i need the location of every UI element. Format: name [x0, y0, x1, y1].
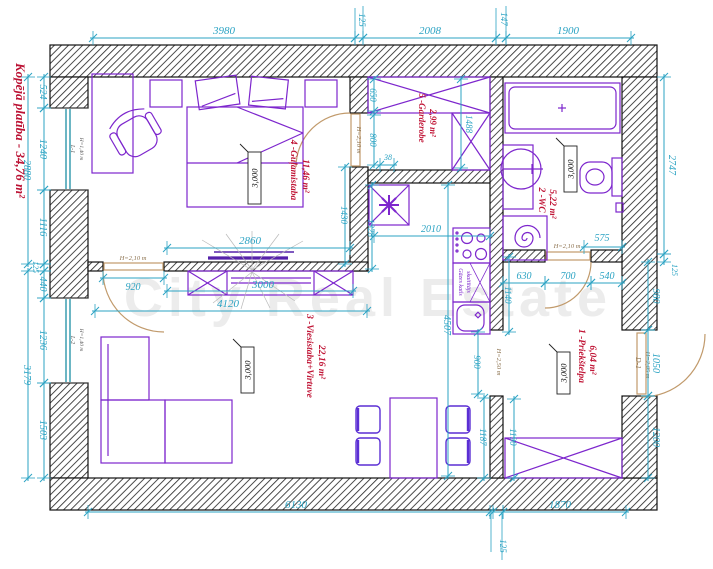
dimension-label: 700: [561, 271, 576, 282]
room-label-bedroom: 4 -Guļamistaba: [288, 139, 298, 201]
dimension-label: 1200: [650, 427, 661, 447]
dimension-label: 125: [670, 264, 679, 276]
wall-interior: [490, 396, 503, 478]
dimension-label: 1140: [503, 286, 513, 304]
room-area-hall: 6,04 m²: [587, 345, 597, 375]
window-l2-height: H=1,40 m: [78, 328, 85, 352]
window-l1-label: L-1: [69, 144, 75, 153]
dimension-label: 1116: [37, 218, 48, 237]
door-d1-label: D-1: [634, 356, 643, 369]
wall-left: [50, 190, 88, 298]
dimension-label: 3980: [212, 25, 236, 37]
dimension-label: 6130: [285, 499, 308, 511]
dimension-label: 1050: [650, 353, 661, 373]
room-label-living: 3 -Viesistaba+Virtuve: [304, 313, 314, 399]
dimension-label: 147: [499, 12, 509, 26]
opening-height: H=2,50 m: [495, 348, 502, 376]
dimension-label: 38: [383, 153, 392, 162]
gas-boiler-label2: skaitītājs: [465, 271, 471, 293]
dimension-label: 2010: [421, 224, 441, 235]
dimension-label: 4120: [217, 298, 240, 310]
dimension-label: 125: [498, 539, 508, 553]
dimension-label: 1236: [37, 330, 48, 350]
window-l1-height: H=1,40 m: [78, 137, 85, 161]
dimension-label: 440: [37, 277, 48, 292]
svg-text:3,000: 3,000: [250, 168, 260, 189]
room-label-garderobe: 5 -Garderobe: [417, 93, 427, 142]
dimension-label: 2008: [419, 25, 442, 37]
svg-text:3,000: 3,000: [559, 363, 569, 384]
dimension-label: 2880: [21, 160, 32, 180]
window-l2-label: L-2: [69, 335, 75, 344]
dimension-label: 1430: [339, 206, 349, 225]
garderobe-door-height: H=2,10 m: [355, 126, 362, 154]
room-area-wc: 5,22 m²: [547, 189, 557, 219]
dimension-label: 524: [37, 85, 48, 100]
dimension-label: 1240: [37, 139, 48, 159]
wall-interior: [88, 262, 103, 271]
svg-text:3,000: 3,000: [243, 360, 253, 381]
wall-interior: [350, 77, 368, 113]
dimension-label: 630: [517, 271, 532, 282]
dimension-label: 1900: [557, 25, 580, 37]
svg-text:3,000: 3,000: [566, 159, 576, 180]
dimension-label: 800: [368, 133, 378, 147]
wall-left: [50, 77, 88, 108]
dimension-label: 2747: [666, 155, 677, 176]
dimension-label: 3179: [21, 364, 32, 385]
wall-left: [50, 383, 88, 478]
dimension-label: 1870: [549, 499, 572, 511]
wall-interior: [490, 77, 503, 330]
dimension-label: 1187: [478, 428, 488, 446]
floor-plan-page: City Real Estate: [0, 0, 713, 569]
wc-door-height: H=2,10 m: [553, 243, 581, 250]
dimension-label: 1503: [37, 420, 48, 440]
wall-interior: [164, 262, 368, 271]
dimension-label: 900: [472, 355, 482, 369]
dimension-label: 1190: [508, 428, 518, 446]
dimension-label: 650: [368, 88, 378, 102]
wall-interior: [591, 250, 622, 262]
dimension-label: 3000: [251, 279, 275, 291]
wall-interior: [368, 170, 503, 183]
gas-boiler-label: Gāzes katls: [457, 268, 463, 296]
dimension-label: 540: [600, 271, 615, 282]
room-area-garderobe: 2,99 m²: [428, 108, 438, 137]
dimension-label: 575: [595, 233, 610, 244]
dimension-label: 1488: [464, 115, 474, 134]
wall-top: [50, 45, 657, 77]
dimension-label: 125: [357, 13, 367, 27]
dimension-label: 4507: [441, 315, 452, 336]
bedroom-door-height: H=2,10 m: [119, 255, 147, 262]
room-area-bedroom: 11,46 m²: [300, 159, 310, 194]
room-area-living: 22,16 m²: [316, 344, 326, 380]
floor-plan: City Real Estate: [0, 0, 713, 569]
snowflake-icon: [379, 195, 399, 215]
wall-interior: [350, 167, 368, 271]
dimension-label: 1328: [366, 219, 376, 238]
dimension-label: 2860: [239, 235, 262, 247]
room-label-wc: 2 -WC: [536, 186, 546, 213]
dimension-label: 980: [650, 289, 661, 304]
dimension-label: 920: [126, 282, 141, 293]
room-label-hall: 1 -Priekštelpa: [576, 329, 586, 383]
